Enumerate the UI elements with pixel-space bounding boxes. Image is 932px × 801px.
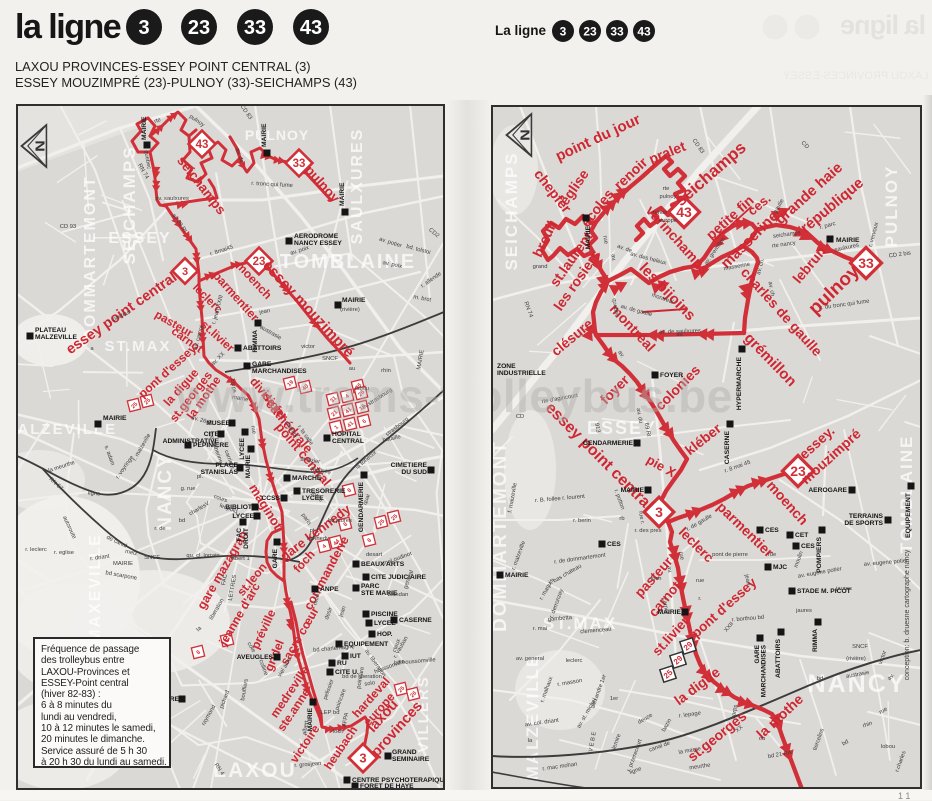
svg-text:N: N	[517, 129, 531, 141]
svg-text:N: N	[32, 140, 46, 152]
